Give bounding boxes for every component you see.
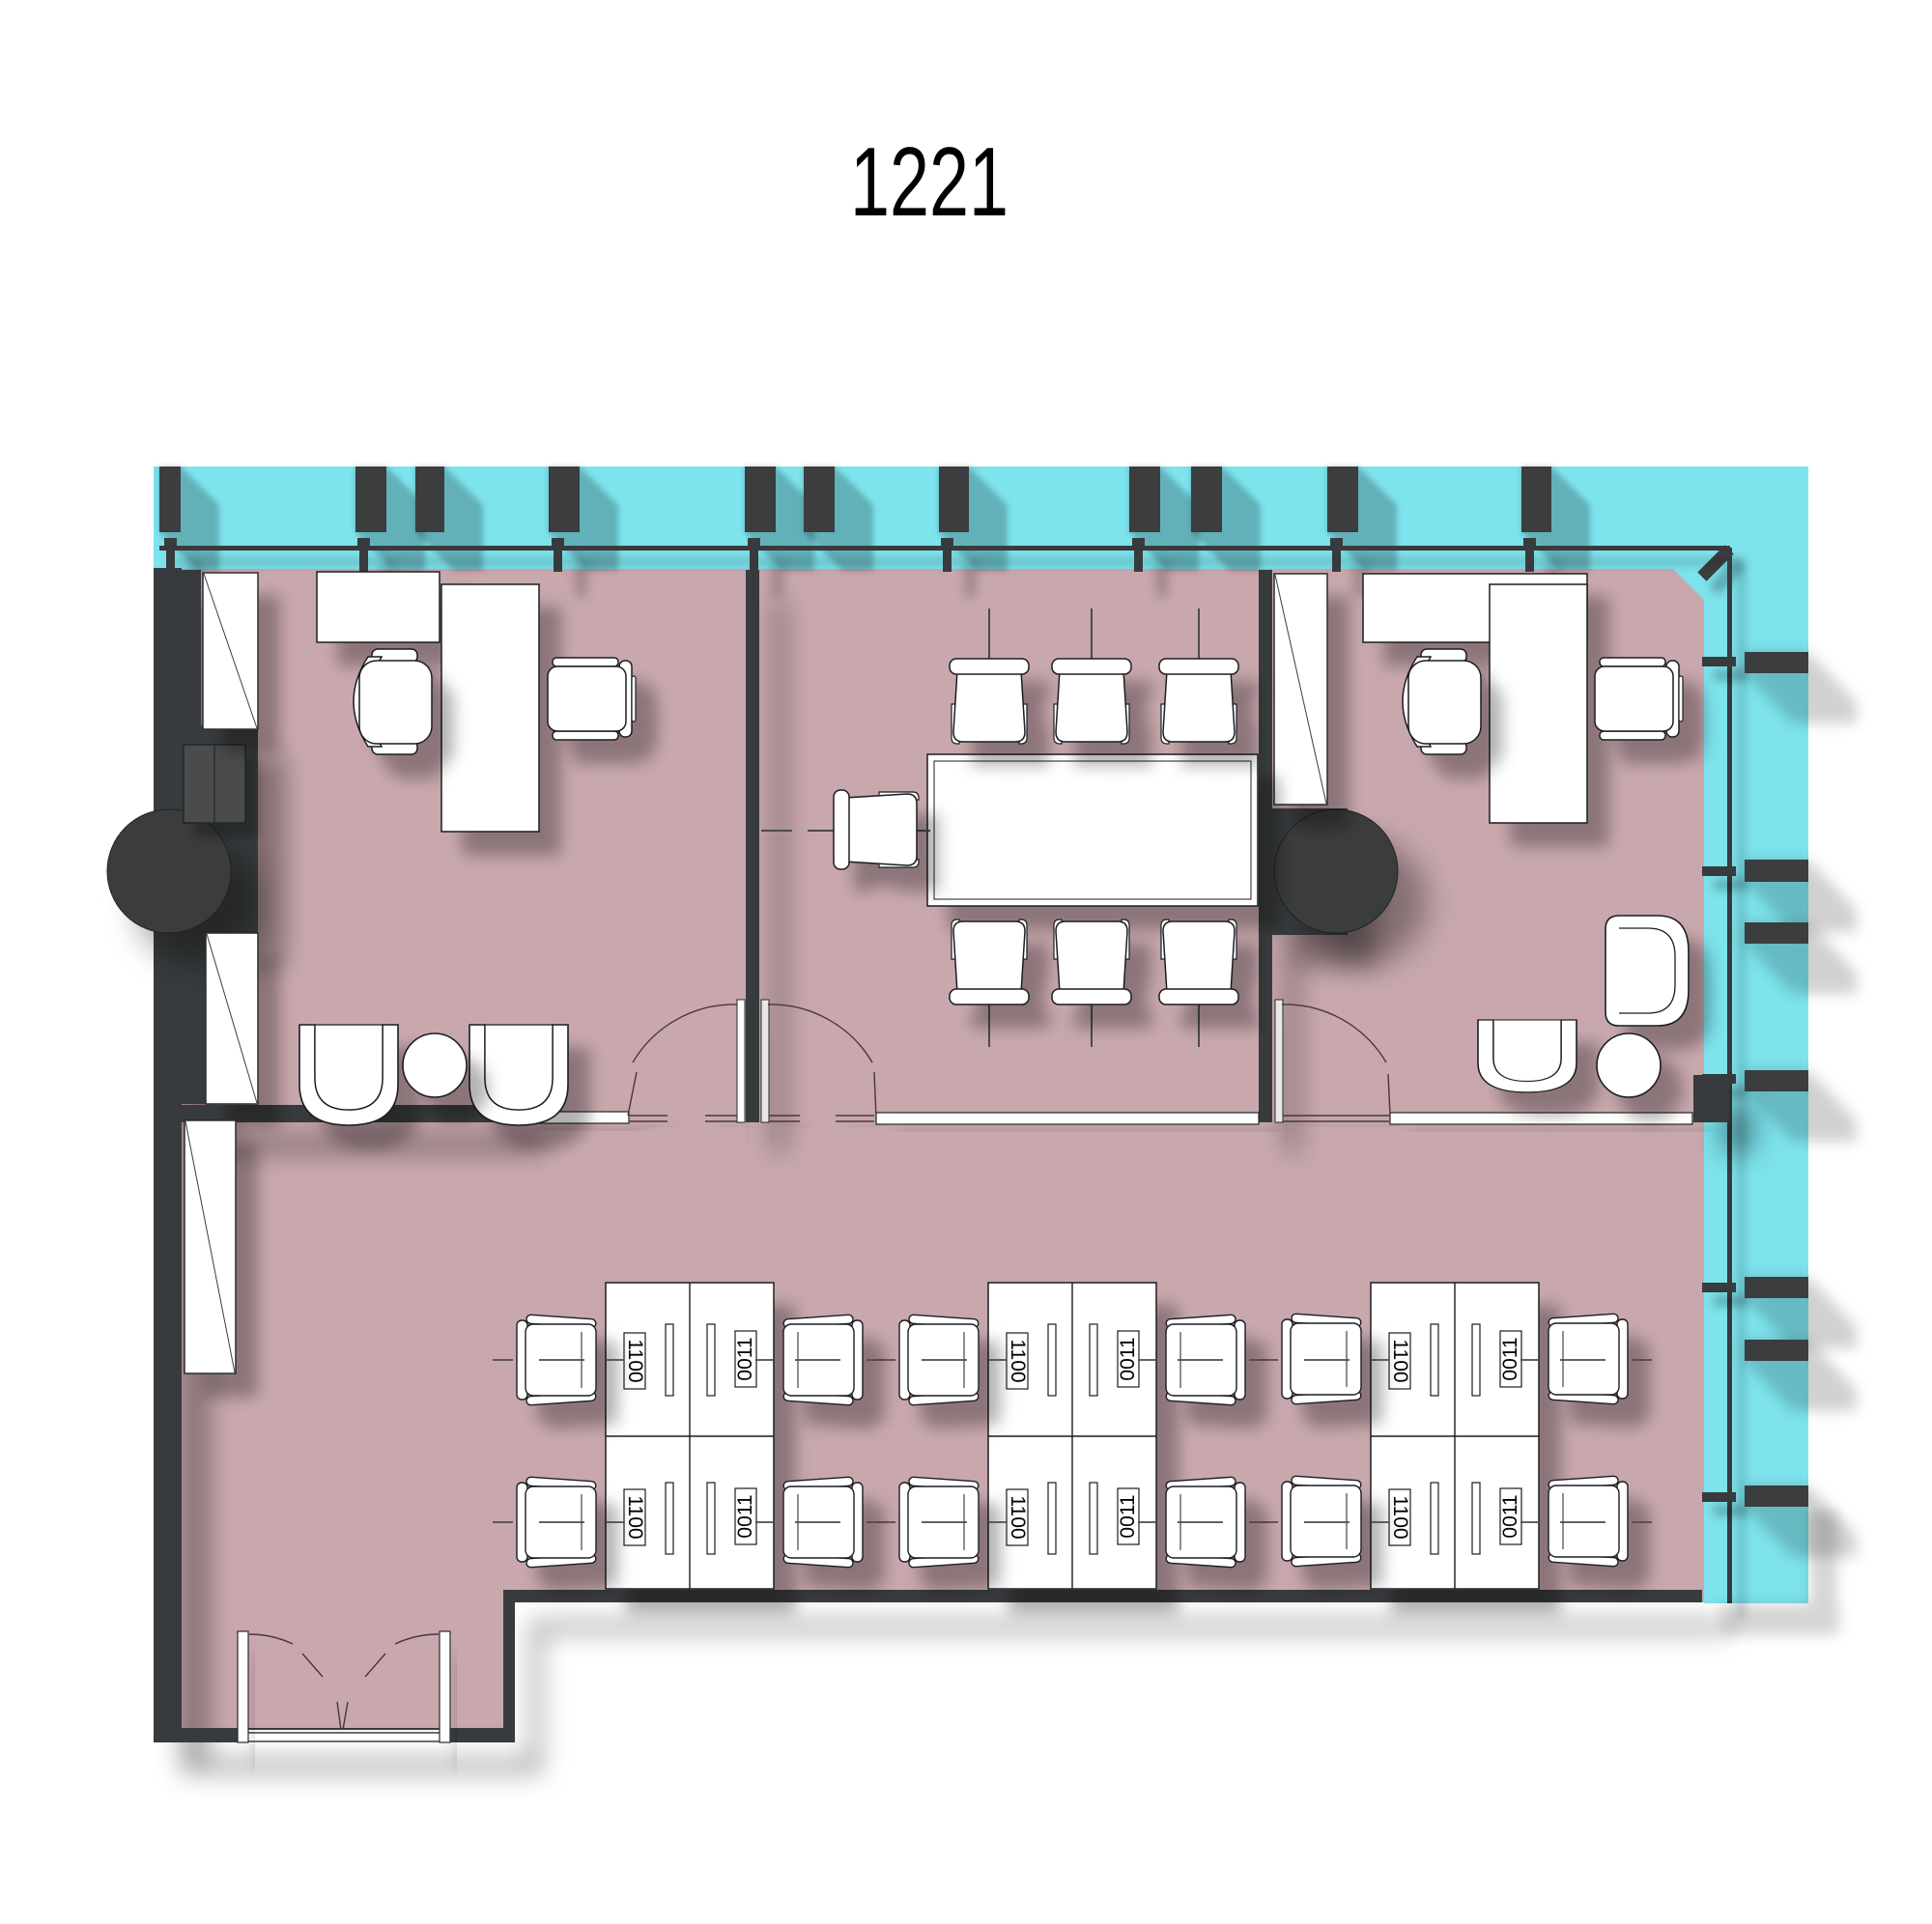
svg-text:1221: 1221 <box>850 127 1009 237</box>
